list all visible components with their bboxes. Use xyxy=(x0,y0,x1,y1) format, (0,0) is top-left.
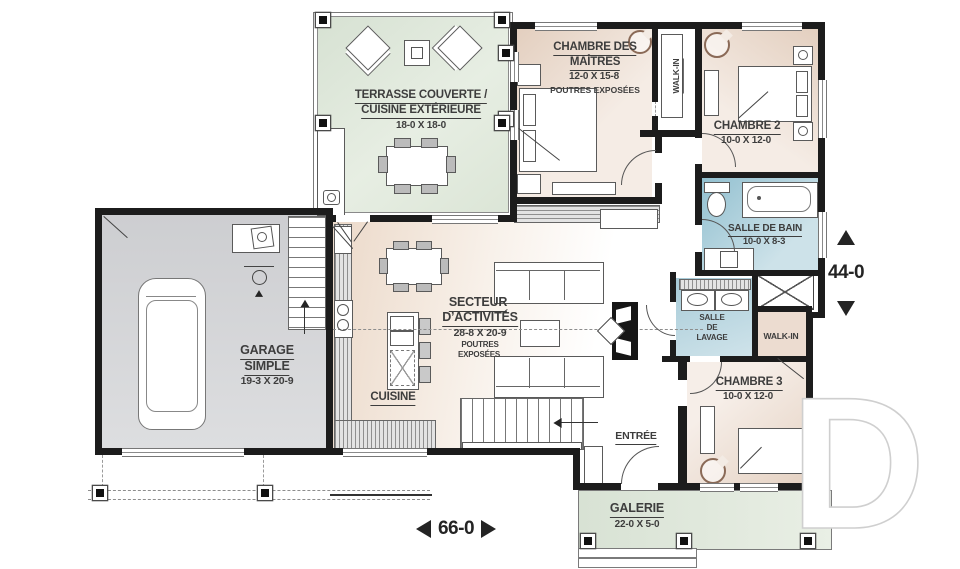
galerie-label: GALERIE xyxy=(610,501,664,518)
galerie-dim: 22-0 X 5-0 xyxy=(615,520,660,530)
stairs-direction-line xyxy=(558,422,598,423)
terrasse-dim: 18-0 X 18-0 xyxy=(396,121,446,131)
terrasse-label-line2: CUISINE EXTÉRIEURE xyxy=(361,104,481,119)
ceiling-fan-icon xyxy=(700,458,726,484)
stool-icon xyxy=(419,342,431,359)
lamp xyxy=(798,50,808,60)
wall xyxy=(670,272,676,302)
bathtub-drain xyxy=(757,196,761,200)
lamp xyxy=(798,126,808,136)
dimension-arrow-left xyxy=(416,520,431,538)
sofa-back xyxy=(496,264,600,271)
wall xyxy=(695,22,702,138)
chair-icon xyxy=(394,184,411,194)
window xyxy=(700,483,734,492)
post xyxy=(258,486,272,500)
garage-door xyxy=(122,448,244,457)
sofa-cushion-line xyxy=(529,358,530,388)
secteur-note-line2: EXPOSÉES xyxy=(458,351,500,359)
wall xyxy=(95,208,333,215)
dresser-icon xyxy=(552,182,616,195)
post xyxy=(495,13,509,27)
master-dim: 12-0 X 15-8 xyxy=(569,72,619,82)
side-table-top xyxy=(411,47,423,59)
window xyxy=(432,215,498,224)
burner xyxy=(337,319,349,331)
lavage-label-line2: DE xyxy=(707,324,718,332)
wall xyxy=(752,306,812,312)
stool-icon xyxy=(419,366,431,383)
terrasse-label-line1: TERRASSE COUVERTE / xyxy=(355,89,487,104)
chair-icon xyxy=(378,156,388,173)
walkin3-label: WALK-IN xyxy=(764,332,799,341)
grill-burner xyxy=(327,193,336,202)
dimension-arrow-up xyxy=(837,230,855,245)
height-dimension-text: 44-0 xyxy=(828,262,864,284)
entry-closet xyxy=(584,446,603,484)
master-note: POUTRES EXPOSÉES xyxy=(550,86,640,95)
window xyxy=(343,448,427,457)
chair-icon xyxy=(416,283,432,292)
tv-console-icon xyxy=(600,209,658,229)
bain-dim: 10-0 X 8-3 xyxy=(743,237,785,247)
laundry-tub-drain xyxy=(257,232,267,242)
gallery-steps xyxy=(578,548,697,558)
chair-icon xyxy=(421,184,438,194)
sink xyxy=(720,251,738,268)
master-label-line2: MAÎTRES xyxy=(570,56,620,71)
wall xyxy=(326,215,333,455)
window xyxy=(742,22,802,31)
nightstand-icon xyxy=(517,64,541,86)
outdoor-table-icon xyxy=(386,146,448,186)
post xyxy=(93,486,107,500)
chair-icon xyxy=(394,138,411,148)
toilet-bowl xyxy=(707,192,726,217)
water-heater-icon xyxy=(252,270,267,285)
wall xyxy=(510,197,662,204)
chair-icon xyxy=(393,283,409,292)
pillow xyxy=(796,95,808,117)
dishwasher-icon xyxy=(390,350,415,386)
width-dimension-text: 66-0 xyxy=(438,518,474,540)
master-label-line1: CHAMBRE DES xyxy=(553,41,636,56)
wall xyxy=(652,29,658,102)
wall xyxy=(752,270,758,360)
window xyxy=(740,483,778,492)
island-sink xyxy=(390,331,414,346)
post xyxy=(677,534,691,548)
sofa-cushion-line xyxy=(564,358,565,388)
wall xyxy=(678,362,687,380)
secteur-dim: 28-8 X 20-9 xyxy=(454,328,507,339)
wall xyxy=(695,164,702,172)
chair-icon xyxy=(379,258,388,274)
chair-icon xyxy=(421,138,438,148)
width-dimension: 66-0 xyxy=(398,516,514,542)
kitchen-counter-front xyxy=(334,420,436,450)
post xyxy=(316,116,330,130)
entree-label: ENTRÉE xyxy=(615,430,656,445)
dimension-arrow-down xyxy=(837,301,855,316)
lavage-label-line1: SALLE xyxy=(699,314,724,322)
car-cabin xyxy=(146,300,198,412)
car-windshield xyxy=(146,296,196,297)
wall xyxy=(678,406,687,483)
floor-plan: TERRASSE COUVERTE / CUISINE EXTÉRIEURE 1… xyxy=(0,0,960,569)
pillow xyxy=(523,94,536,126)
wall xyxy=(655,183,662,199)
chambre3-label: CHAMBRE 3 xyxy=(716,376,783,391)
chambre3-dim: 10-0 X 12-0 xyxy=(723,392,773,402)
window xyxy=(818,80,827,138)
post xyxy=(581,534,595,548)
wall xyxy=(640,130,702,137)
water-heater-icon xyxy=(244,266,274,267)
chambre2-label: CHAMBRE 2 xyxy=(714,120,781,135)
front-door-opening xyxy=(621,483,658,490)
chambre2-dim: 10-0 X 12-0 xyxy=(721,136,771,146)
stairs-arrow xyxy=(301,300,310,308)
brand-watermark-d: D xyxy=(790,390,926,537)
cuisine-label: CUISINE xyxy=(370,391,415,406)
bain-label: SALLE DE BAIN xyxy=(728,223,802,237)
wall xyxy=(695,252,702,270)
wall xyxy=(652,116,658,130)
sofa-cushion-line xyxy=(564,270,565,300)
dining-table-icon xyxy=(386,248,442,285)
dimension-arrow-right xyxy=(481,520,496,538)
walkin-opening xyxy=(655,101,656,117)
secteur-note-line1: POUTRES xyxy=(461,341,498,349)
ceiling-fan-icon xyxy=(704,32,730,58)
terrace-door-opening xyxy=(336,215,370,222)
wall xyxy=(695,178,702,225)
post xyxy=(499,46,513,60)
front-door-arc xyxy=(621,446,659,484)
garage-stairs xyxy=(288,216,326,330)
post xyxy=(495,116,509,130)
height-dimension: 44-0 xyxy=(824,230,868,316)
window xyxy=(535,22,597,31)
chair-icon xyxy=(446,156,456,173)
secteur-label-line2: D’ACTIVITÉS xyxy=(442,310,518,327)
wall xyxy=(95,208,102,455)
master-walkin-label: WALK-IN xyxy=(671,59,684,94)
coffee-table-icon xyxy=(520,320,560,347)
burner xyxy=(337,304,349,316)
lavage-label-line3: LAVAGE xyxy=(697,334,728,342)
wall xyxy=(573,448,580,490)
garage-label-line2: SIMPLE xyxy=(244,359,289,376)
stairs-direction-line xyxy=(304,306,305,334)
stool-icon xyxy=(419,318,431,335)
overhang-line xyxy=(263,455,264,487)
sofa-cushion-line xyxy=(529,270,530,300)
chair-icon xyxy=(393,241,409,250)
garage-dim: 19-3 X 20-9 xyxy=(241,376,294,387)
section-line xyxy=(333,329,703,330)
wall xyxy=(695,270,822,276)
overhang-line xyxy=(102,455,103,487)
chair-icon xyxy=(416,241,432,250)
chair-icon xyxy=(440,258,449,274)
dryer-lid xyxy=(721,293,742,306)
wall xyxy=(655,137,662,153)
washer-lid xyxy=(687,293,708,306)
gallery-steps xyxy=(578,558,697,568)
wall xyxy=(695,172,825,178)
pillow xyxy=(523,130,536,162)
nightstand-icon xyxy=(517,174,541,194)
garage-label-line1: GARAGE xyxy=(240,343,294,360)
post xyxy=(316,13,330,27)
walkway-edge xyxy=(330,494,432,496)
linen-closet xyxy=(756,274,814,310)
floor-drain-icon xyxy=(255,290,263,297)
sofa-back xyxy=(496,386,600,393)
pillow xyxy=(796,71,808,93)
laundry-shelf-slats xyxy=(679,279,751,290)
stairs-arrow xyxy=(553,418,561,428)
dresser-icon xyxy=(704,70,719,116)
dresser-icon xyxy=(700,406,715,454)
